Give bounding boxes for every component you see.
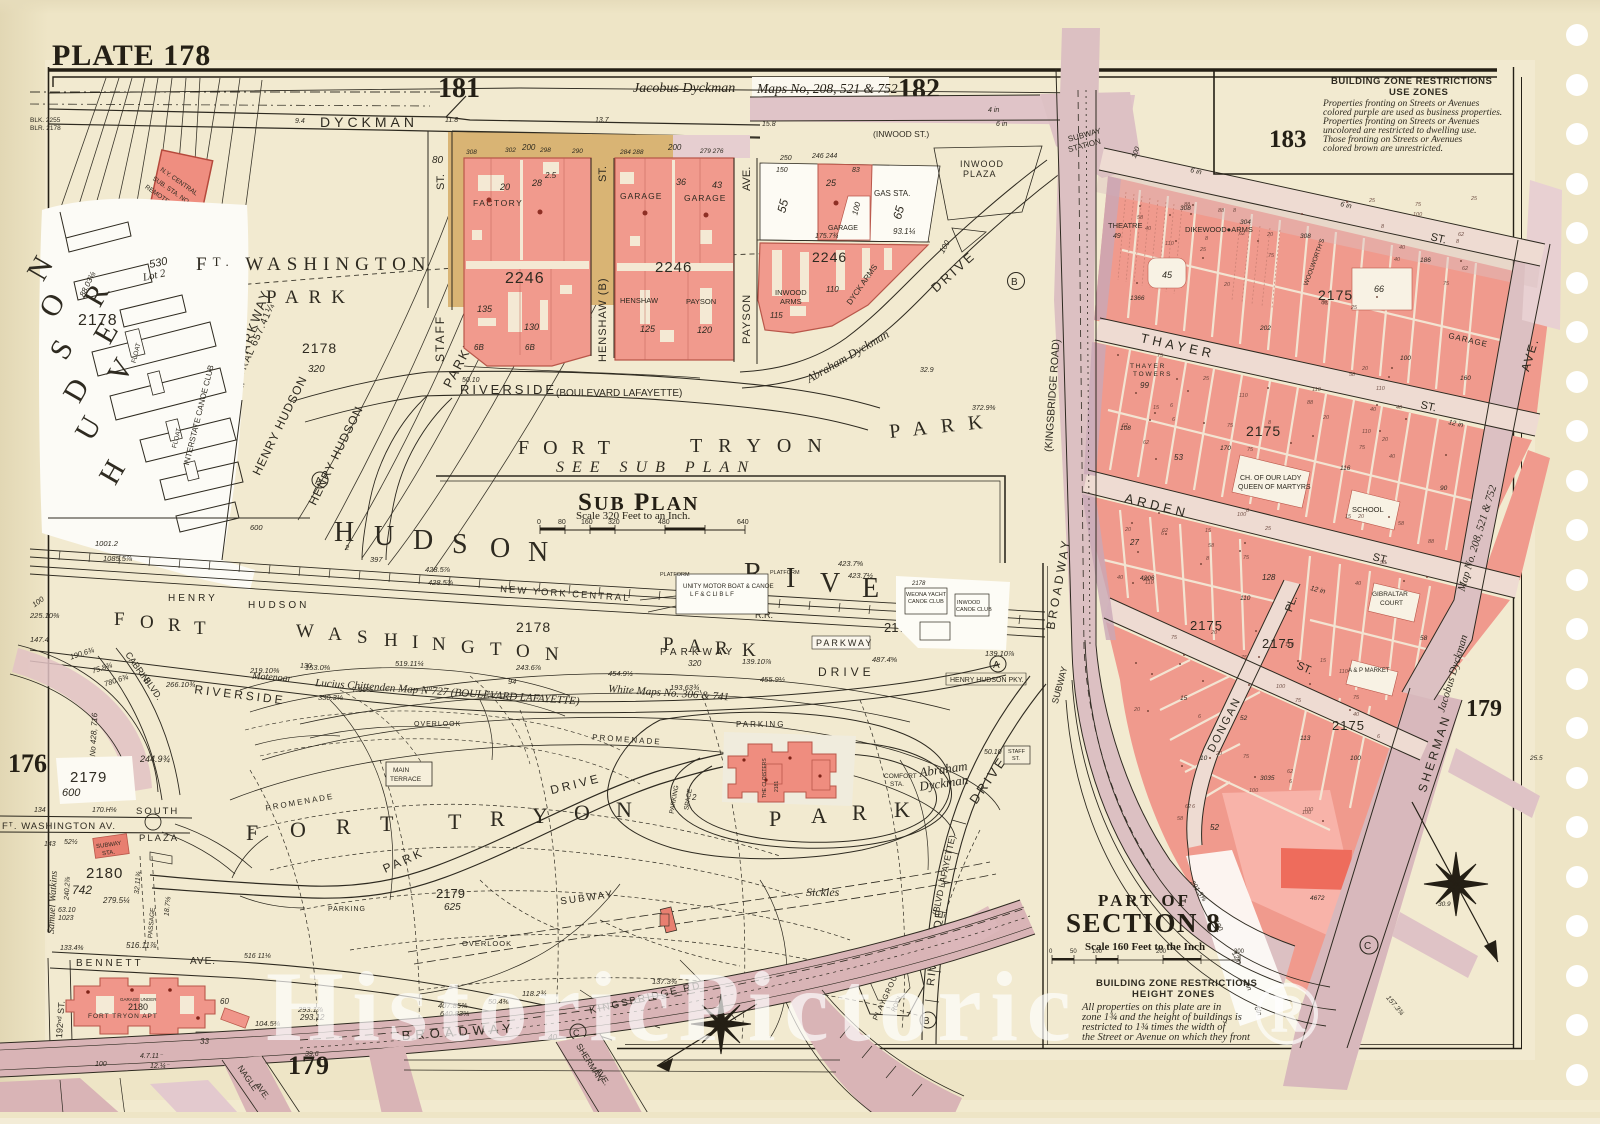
svg-text:6B: 6B bbox=[474, 343, 484, 352]
svg-text:INWOOD: INWOOD bbox=[775, 288, 807, 297]
svg-text:110: 110 bbox=[1285, 642, 1295, 648]
svg-text:279 276: 279 276 bbox=[699, 148, 724, 155]
svg-text:300: 300 bbox=[1234, 949, 1245, 955]
svg-text:110: 110 bbox=[826, 285, 839, 294]
svg-text:304: 304 bbox=[1240, 219, 1251, 226]
svg-text:PLATFORM: PLATFORM bbox=[770, 570, 800, 576]
svg-text:A: A bbox=[688, 636, 702, 657]
svg-text:110: 110 bbox=[1240, 595, 1251, 602]
svg-text:20: 20 bbox=[1357, 514, 1365, 520]
svg-text:75: 75 bbox=[1243, 754, 1250, 760]
svg-text:ST.: ST. bbox=[597, 166, 609, 182]
svg-text:100: 100 bbox=[1413, 212, 1423, 218]
svg-text:75: 75 bbox=[1247, 447, 1254, 453]
svg-text:625: 625 bbox=[444, 902, 461, 913]
svg-text:2: 2 bbox=[691, 793, 697, 802]
svg-text:O: O bbox=[516, 641, 530, 662]
svg-text:32.9: 32.9 bbox=[920, 367, 934, 374]
svg-text:36: 36 bbox=[676, 177, 686, 187]
svg-text:40: 40 bbox=[1117, 575, 1124, 581]
svg-text:27: 27 bbox=[1129, 538, 1139, 547]
svg-text:93.1¼: 93.1¼ bbox=[893, 227, 916, 236]
svg-text:243.6⅞: 243.6⅞ bbox=[515, 663, 542, 672]
svg-text:2180: 2180 bbox=[86, 865, 123, 882]
svg-text:320: 320 bbox=[688, 659, 702, 668]
svg-text:11.8: 11.8 bbox=[445, 117, 458, 124]
svg-text:HEIGHT ZONES: HEIGHT ZONES bbox=[1132, 989, 1215, 1000]
svg-text:320: 320 bbox=[608, 519, 620, 526]
svg-text:1023: 1023 bbox=[58, 915, 74, 922]
svg-text:25: 25 bbox=[1350, 305, 1358, 311]
svg-text:PARK: PARK bbox=[266, 287, 355, 308]
svg-text:58: 58 bbox=[1349, 372, 1356, 378]
svg-text:75: 75 bbox=[1359, 445, 1366, 451]
svg-text:AVE.: AVE. bbox=[741, 167, 753, 191]
svg-text:308: 308 bbox=[1300, 233, 1311, 240]
svg-text:BLR. 2178: BLR. 2178 bbox=[30, 125, 61, 132]
svg-text:20: 20 bbox=[1124, 527, 1132, 533]
svg-text:640: 640 bbox=[737, 519, 749, 526]
svg-text:160: 160 bbox=[1460, 375, 1471, 382]
svg-text:7.50½: 7.50½ bbox=[352, 685, 374, 694]
svg-text:ARMS: ARMS bbox=[780, 297, 802, 306]
svg-text:HistoricPictoric: HistoricPictoric bbox=[266, 951, 1079, 1062]
svg-text:175.7¾: 175.7¾ bbox=[815, 233, 839, 240]
svg-text:183: 183 bbox=[1269, 126, 1307, 153]
svg-text:L F & C LI B L F: L F & C LI B L F bbox=[690, 591, 734, 598]
svg-text:75: 75 bbox=[1295, 698, 1302, 704]
svg-text:25: 25 bbox=[825, 178, 837, 188]
svg-text:49: 49 bbox=[1113, 233, 1121, 240]
svg-text:6 in: 6 in bbox=[996, 121, 1007, 128]
svg-text:INWOOD: INWOOD bbox=[960, 159, 1004, 169]
svg-text:CANOE CLUB: CANOE CLUB bbox=[908, 599, 944, 605]
svg-text:116: 116 bbox=[1340, 465, 1351, 472]
svg-text:88: 88 bbox=[1218, 208, 1225, 214]
svg-text:397: 397 bbox=[370, 555, 383, 564]
svg-text:100: 100 bbox=[95, 1061, 107, 1068]
svg-text:179: 179 bbox=[1466, 696, 1502, 722]
svg-text:2246: 2246 bbox=[505, 270, 545, 287]
svg-text:2179: 2179 bbox=[436, 886, 465, 901]
svg-text:1001.2: 1001.2 bbox=[95, 539, 119, 548]
svg-text:75: 75 bbox=[1227, 423, 1234, 429]
svg-text:A: A bbox=[993, 660, 1000, 671]
svg-text:R: R bbox=[490, 806, 505, 831]
svg-text:PLATFORM: PLATFORM bbox=[660, 572, 690, 578]
svg-text:15: 15 bbox=[1345, 514, 1352, 520]
svg-text:R: R bbox=[168, 615, 181, 636]
svg-text:THE CLOISTERS: THE CLOISTERS bbox=[762, 758, 768, 798]
svg-text:62: 62 bbox=[1458, 232, 1464, 238]
svg-text:ST.: ST. bbox=[1012, 756, 1020, 762]
svg-text:(INWOOD ST.): (INWOOD ST.) bbox=[873, 129, 929, 139]
svg-text:9.4: 9.4 bbox=[295, 118, 305, 125]
svg-text:GAS STA.: GAS STA. bbox=[874, 189, 910, 198]
svg-text:279.5¼: 279.5¼ bbox=[102, 896, 130, 905]
svg-text:T: T bbox=[448, 809, 462, 834]
svg-text:GARAGE: GARAGE bbox=[684, 193, 726, 203]
svg-text:45: 45 bbox=[1162, 270, 1173, 280]
svg-text:2180: 2180 bbox=[128, 1002, 148, 1012]
svg-text:3035: 3035 bbox=[1260, 775, 1275, 782]
svg-text:COMFORT: COMFORT bbox=[884, 773, 917, 780]
svg-text:F: F bbox=[246, 820, 258, 845]
svg-text:4 in: 4 in bbox=[988, 107, 999, 114]
svg-text:0: 0 bbox=[537, 519, 541, 526]
svg-text:423.7⅝: 423.7⅝ bbox=[838, 559, 864, 568]
svg-text:STAFF: STAFF bbox=[433, 315, 447, 362]
svg-text:75: 75 bbox=[1415, 202, 1422, 208]
svg-text:®: ® bbox=[1252, 962, 1321, 1064]
svg-text:Scale 320 Feet to an Inch.: Scale 320 Feet to an Inch. bbox=[576, 510, 690, 522]
svg-text:I: I bbox=[786, 563, 795, 594]
svg-text:FACTORY: FACTORY bbox=[473, 198, 523, 208]
svg-text:219.10⅜: 219.10⅜ bbox=[249, 666, 280, 675]
svg-text:62: 62 bbox=[1239, 231, 1245, 237]
svg-text:320: 320 bbox=[308, 364, 325, 375]
svg-text:R: R bbox=[852, 800, 867, 825]
svg-text:423.7½: 423.7½ bbox=[848, 571, 874, 580]
svg-text:O: O bbox=[140, 612, 154, 633]
svg-text:PARKWAY: PARKWAY bbox=[816, 638, 873, 648]
svg-text:S: S bbox=[452, 529, 468, 560]
svg-text:O: O bbox=[574, 800, 590, 825]
svg-text:PARKING: PARKING bbox=[328, 906, 366, 913]
svg-text:GARAGE UNDER: GARAGE UNDER bbox=[120, 997, 157, 1002]
svg-text:I: I bbox=[412, 632, 418, 653]
svg-text:58: 58 bbox=[1177, 816, 1184, 822]
svg-text:75: 75 bbox=[1268, 253, 1275, 259]
svg-text:75: 75 bbox=[1157, 353, 1164, 359]
svg-text:R: R bbox=[715, 638, 728, 659]
svg-text:O: O bbox=[290, 817, 306, 842]
svg-text:T: T bbox=[380, 811, 394, 836]
svg-text:F: F bbox=[114, 609, 125, 630]
svg-text:225.10⅜: 225.10⅜ bbox=[29, 611, 60, 620]
svg-text:80: 80 bbox=[432, 155, 444, 166]
svg-text:C: C bbox=[1364, 941, 1371, 952]
svg-text:284 288: 284 288 bbox=[619, 149, 644, 156]
svg-text:13.7: 13.7 bbox=[595, 117, 610, 124]
svg-text:SCHOOL: SCHOOL bbox=[1352, 505, 1384, 514]
svg-text:20: 20 bbox=[499, 182, 510, 192]
svg-text:20: 20 bbox=[1210, 630, 1218, 636]
svg-text:40: 40 bbox=[1355, 581, 1362, 587]
svg-text:D: D bbox=[413, 525, 433, 556]
svg-text:110: 110 bbox=[1362, 429, 1372, 435]
svg-text:4672: 4672 bbox=[1310, 895, 1325, 902]
svg-text:202: 202 bbox=[1259, 325, 1271, 332]
svg-text:40: 40 bbox=[1389, 454, 1396, 460]
svg-text:40: 40 bbox=[1145, 226, 1152, 232]
svg-text:62: 62 bbox=[1287, 769, 1293, 775]
svg-text:40: 40 bbox=[1353, 712, 1360, 718]
svg-text:2178: 2178 bbox=[302, 340, 337, 356]
svg-text:20: 20 bbox=[1223, 282, 1231, 288]
svg-text:15: 15 bbox=[1320, 658, 1327, 664]
svg-text:62: 62 bbox=[1462, 266, 1468, 272]
svg-text:58: 58 bbox=[1208, 543, 1215, 549]
svg-text:H: H bbox=[384, 630, 398, 651]
svg-text:40: 40 bbox=[1399, 245, 1406, 251]
svg-text:516.11⅞: 516.11⅞ bbox=[126, 941, 157, 950]
svg-text:PLAZA: PLAZA bbox=[963, 169, 997, 179]
svg-text:80: 80 bbox=[558, 519, 566, 526]
svg-text:160: 160 bbox=[581, 519, 593, 526]
svg-text:150: 150 bbox=[776, 167, 788, 174]
svg-text:290: 290 bbox=[571, 148, 583, 155]
svg-text:53: 53 bbox=[1174, 453, 1183, 462]
svg-text:U: U bbox=[374, 521, 394, 552]
svg-text:WEONA YACHT: WEONA YACHT bbox=[906, 592, 947, 598]
svg-text:25: 25 bbox=[1199, 247, 1207, 253]
svg-text:2: 2 bbox=[344, 543, 350, 552]
svg-text:40: 40 bbox=[1396, 405, 1403, 411]
svg-text:ST.: ST. bbox=[435, 174, 447, 190]
svg-text:2178: 2178 bbox=[516, 619, 551, 635]
svg-text:302: 302 bbox=[505, 147, 516, 154]
svg-text:20: 20 bbox=[1361, 366, 1369, 372]
svg-text:110: 110 bbox=[1339, 669, 1349, 675]
svg-text:186: 186 bbox=[1420, 257, 1431, 264]
svg-text:428.5⅞: 428.5⅞ bbox=[425, 565, 451, 574]
svg-text:170: 170 bbox=[1220, 445, 1231, 452]
svg-text:(BOULEVARD LAFAYETTE): (BOULEVARD LAFAYETTE) bbox=[556, 388, 682, 399]
svg-text:HENRY: HENRY bbox=[168, 593, 218, 604]
svg-text:15: 15 bbox=[1205, 528, 1212, 534]
svg-text:125: 125 bbox=[640, 324, 656, 334]
svg-text:100: 100 bbox=[1237, 512, 1247, 518]
svg-text:QUEEN OF MARTYRS: QUEEN OF MARTYRS bbox=[1238, 484, 1311, 491]
svg-text:600: 600 bbox=[250, 523, 263, 532]
svg-text:100: 100 bbox=[1400, 355, 1411, 362]
svg-text:200: 200 bbox=[1156, 949, 1167, 955]
svg-text:108: 108 bbox=[1120, 425, 1131, 432]
svg-text:FORT TRYON APT: FORT TRYON APT bbox=[88, 1013, 158, 1020]
svg-text:100: 100 bbox=[1276, 684, 1286, 690]
svg-text:99: 99 bbox=[1140, 381, 1149, 390]
svg-text:TERRACE: TERRACE bbox=[390, 776, 422, 783]
svg-text:N: N bbox=[432, 634, 446, 655]
svg-text:2178: 2178 bbox=[78, 312, 118, 329]
svg-text:40: 40 bbox=[1394, 257, 1401, 263]
svg-text:200: 200 bbox=[667, 143, 682, 152]
svg-text:88: 88 bbox=[1428, 539, 1435, 545]
svg-text:143: 143 bbox=[44, 841, 56, 848]
svg-text:240.2⅞: 240.2⅞ bbox=[64, 876, 72, 901]
svg-text:RIVERSIDE: RIVERSIDE bbox=[460, 382, 557, 397]
svg-text:133.4⅜: 133.4⅜ bbox=[60, 945, 84, 952]
svg-text:60: 60 bbox=[220, 997, 229, 1006]
svg-text:4206: 4206 bbox=[1140, 575, 1155, 582]
svg-text:DYCKMAN: DYCKMAN bbox=[320, 114, 418, 130]
svg-text:USE ZONES: USE ZONES bbox=[1389, 87, 1448, 98]
svg-text:THEATRE: THEATRE bbox=[1108, 221, 1142, 230]
svg-text:20: 20 bbox=[1215, 751, 1223, 757]
svg-text:OVERLOOK: OVERLOOK bbox=[414, 721, 461, 728]
svg-text:N: N bbox=[528, 537, 548, 568]
svg-text:T O W E R S: T O W E R S bbox=[1133, 371, 1171, 378]
svg-text:110: 110 bbox=[1239, 393, 1249, 399]
svg-text:PLAZA: PLAZA bbox=[139, 833, 179, 844]
svg-text:250: 250 bbox=[779, 155, 792, 162]
svg-text:TRYON: TRYON bbox=[690, 435, 838, 457]
svg-text:FORT: FORT bbox=[518, 437, 624, 459]
svg-text:STA.: STA. bbox=[890, 781, 904, 788]
svg-text:115: 115 bbox=[770, 311, 783, 320]
svg-text:P: P bbox=[769, 806, 781, 831]
svg-text:50.10: 50.10 bbox=[984, 749, 1002, 756]
svg-text:298: 298 bbox=[539, 147, 551, 154]
svg-text:colored brown are unrestricted: colored brown are unrestricted. bbox=[1323, 144, 1443, 154]
svg-text:25: 25 bbox=[1470, 196, 1478, 202]
svg-text:200: 200 bbox=[521, 143, 536, 152]
svg-text:BLK. 2255: BLK. 2255 bbox=[30, 117, 61, 124]
svg-text:the Street or Avenue on which: the Street or Avenue on which they front bbox=[1082, 1032, 1251, 1043]
svg-text:A: A bbox=[811, 803, 827, 828]
svg-text:COURT: COURT bbox=[1380, 600, 1403, 607]
svg-text:25: 25 bbox=[1368, 198, 1376, 204]
svg-text:A & P MARKET: A & P MARKET bbox=[1348, 668, 1390, 674]
svg-text:20: 20 bbox=[1322, 415, 1330, 421]
svg-text:SECTION 8: SECTION 8 bbox=[1066, 908, 1221, 938]
svg-text:20: 20 bbox=[1133, 707, 1141, 713]
svg-text:PLATE 178: PLATE 178 bbox=[52, 39, 211, 72]
svg-text:K: K bbox=[894, 797, 910, 822]
svg-text:15: 15 bbox=[1153, 405, 1160, 411]
svg-text:15.8: 15.8 bbox=[762, 121, 776, 128]
svg-text:G: G bbox=[461, 637, 475, 658]
svg-text:N: N bbox=[545, 644, 559, 665]
svg-text:2178: 2178 bbox=[911, 581, 926, 587]
svg-text:DRIVE: DRIVE bbox=[818, 665, 875, 679]
svg-text:B: B bbox=[1011, 277, 1018, 288]
svg-text:O: O bbox=[490, 533, 510, 564]
svg-text:T: T bbox=[194, 618, 206, 639]
svg-text:BUILDING ZONE RESTRICTIONS: BUILDING ZONE RESTRICTIONS bbox=[1331, 76, 1492, 87]
svg-text:193.63¾: 193.63¾ bbox=[670, 683, 699, 692]
svg-text:246 244: 246 244 bbox=[811, 153, 837, 160]
svg-text:100: 100 bbox=[1304, 807, 1314, 813]
svg-text:2175: 2175 bbox=[1332, 718, 1365, 733]
svg-text:100: 100 bbox=[1249, 788, 1259, 794]
svg-text:SEE SUB PLAN: SEE SUB PLAN bbox=[556, 459, 756, 476]
svg-text:BENNETT: BENNETT bbox=[76, 958, 144, 969]
svg-text:20: 20 bbox=[1381, 437, 1389, 443]
svg-text:1366: 1366 bbox=[1130, 295, 1145, 302]
svg-text:15: 15 bbox=[1180, 695, 1188, 702]
svg-text:33: 33 bbox=[200, 1037, 209, 1046]
svg-text:75: 75 bbox=[1353, 695, 1360, 701]
svg-text:1085.5⅞: 1085.5⅞ bbox=[103, 554, 133, 563]
svg-text:110: 110 bbox=[1312, 387, 1322, 393]
svg-text:INWOOD: INWOOD bbox=[957, 600, 980, 606]
svg-text:100: 100 bbox=[1350, 755, 1361, 762]
svg-text:75: 75 bbox=[1241, 655, 1248, 661]
svg-text:2175: 2175 bbox=[1190, 618, 1223, 633]
svg-text:43: 43 bbox=[712, 180, 722, 190]
svg-text:MAIN: MAIN bbox=[393, 767, 410, 774]
svg-text:4.7.11⁻: 4.7.11⁻ bbox=[140, 1053, 164, 1060]
svg-text:110: 110 bbox=[1376, 386, 1386, 392]
svg-text:PARKING: PARKING bbox=[736, 720, 785, 729]
svg-text:75: 75 bbox=[1322, 301, 1329, 307]
svg-text:147.4: 147.4 bbox=[30, 635, 49, 644]
svg-text:S: S bbox=[357, 627, 368, 648]
svg-text:2181: 2181 bbox=[774, 781, 780, 792]
svg-text:STAFF: STAFF bbox=[1008, 749, 1026, 755]
svg-text:266.10¾: 266.10¾ bbox=[165, 680, 195, 689]
svg-text:113: 113 bbox=[1300, 735, 1311, 742]
svg-text:30.9: 30.9 bbox=[1438, 901, 1451, 908]
svg-text:487.4⅝: 487.4⅝ bbox=[872, 655, 898, 664]
svg-text:134: 134 bbox=[34, 807, 46, 814]
svg-text:75: 75 bbox=[1443, 281, 1450, 287]
svg-text:12.¼⁻: 12.¼⁻ bbox=[150, 1063, 171, 1070]
svg-text:600: 600 bbox=[62, 787, 81, 799]
svg-text:62: 62 bbox=[1143, 440, 1149, 446]
svg-text:GIBRALTAR: GIBRALTAR bbox=[1372, 591, 1408, 598]
svg-text:GARAGE: GARAGE bbox=[828, 225, 858, 232]
svg-text:58: 58 bbox=[1137, 215, 1144, 221]
svg-text:25.5: 25.5 bbox=[1529, 755, 1543, 762]
svg-text:83: 83 bbox=[852, 167, 860, 174]
svg-text:W: W bbox=[296, 621, 314, 642]
svg-text:25: 25 bbox=[1202, 376, 1210, 382]
svg-text:25: 25 bbox=[1264, 526, 1272, 532]
svg-text:428.5⅞: 428.5⅞ bbox=[428, 578, 454, 587]
svg-text:HENSHAW: HENSHAW bbox=[620, 296, 659, 305]
svg-text:PAYSON: PAYSON bbox=[741, 294, 753, 344]
svg-text:244.9¾: 244.9¾ bbox=[139, 754, 171, 764]
svg-text:OVERLOOK: OVERLOOK bbox=[462, 939, 512, 948]
svg-text:UNITY MOTOR BOAT & CANOE: UNITY MOTOR BOAT & CANOE bbox=[683, 583, 774, 590]
svg-text:480: 480 bbox=[658, 519, 670, 526]
svg-text:T: T bbox=[490, 639, 502, 660]
svg-text:R: R bbox=[336, 814, 351, 839]
svg-text:176: 176 bbox=[8, 749, 47, 778]
svg-text:100: 100 bbox=[1092, 949, 1103, 955]
svg-text:Scale 160 Feet to the Inch: Scale 160 Feet to the Inch bbox=[1085, 941, 1205, 953]
svg-text:PAYSON: PAYSON bbox=[686, 297, 716, 306]
svg-text:308: 308 bbox=[466, 149, 477, 156]
svg-text:63.10: 63.10 bbox=[58, 907, 76, 914]
svg-text:10: 10 bbox=[1200, 755, 1208, 762]
svg-text:40: 40 bbox=[1370, 407, 1377, 413]
svg-text:A: A bbox=[315, 476, 322, 487]
svg-text:Fᵀ. WASHINGTON AV.: Fᵀ. WASHINGTON AV. bbox=[2, 821, 116, 832]
svg-text:110: 110 bbox=[1165, 241, 1175, 247]
svg-text:2246: 2246 bbox=[655, 259, 692, 276]
svg-text:CANOE CLUB: CANOE CLUB bbox=[956, 607, 992, 613]
svg-text:128: 128 bbox=[1262, 573, 1276, 582]
svg-text:28: 28 bbox=[531, 178, 542, 188]
svg-text:308: 308 bbox=[1180, 205, 1191, 212]
svg-text:742: 742 bbox=[72, 883, 92, 897]
svg-text:62: 62 bbox=[1185, 804, 1191, 810]
svg-text:GARAGE: GARAGE bbox=[620, 191, 662, 201]
svg-text:BUILDING ZONE RESTRICTIONS: BUILDING ZONE RESTRICTIONS bbox=[1096, 978, 1257, 989]
svg-text:P: P bbox=[663, 634, 674, 655]
svg-text:58: 58 bbox=[1380, 560, 1387, 566]
svg-text:HENSHAW (B): HENSHAW (B) bbox=[597, 277, 609, 362]
svg-text:N: N bbox=[616, 797, 632, 822]
svg-text:2246: 2246 bbox=[812, 249, 847, 265]
svg-text:Maps No, 208, 521 & 752: Maps No, 208, 521 & 752 bbox=[756, 81, 898, 96]
svg-text:Jacobus Dyckman: Jacobus Dyckman bbox=[633, 81, 735, 96]
svg-text:90: 90 bbox=[1440, 485, 1448, 492]
